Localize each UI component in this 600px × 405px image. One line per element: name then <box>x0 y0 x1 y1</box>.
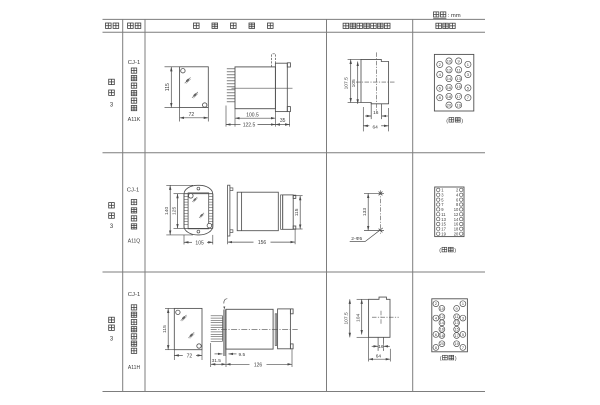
svg-text:1: 1 <box>462 302 464 306</box>
svg-text:105: 105 <box>195 240 204 246</box>
svg-text:19: 19 <box>441 231 446 236</box>
svg-text:13: 13 <box>456 76 461 81</box>
svg-text:31.5: 31.5 <box>212 358 222 364</box>
svg-text:16: 16 <box>378 344 384 350</box>
svg-text:140: 140 <box>164 207 170 215</box>
svg-text:10: 10 <box>440 307 444 311</box>
svg-text:6: 6 <box>435 333 437 337</box>
svg-text:14: 14 <box>440 321 444 325</box>
svg-text:64: 64 <box>373 125 379 131</box>
svg-text:105: 105 <box>351 79 357 87</box>
svg-text:7: 7 <box>462 346 464 350</box>
svg-text:107.5: 107.5 <box>343 312 349 325</box>
svg-text:115: 115 <box>162 325 168 333</box>
svg-text:15: 15 <box>456 84 461 89</box>
svg-text:: mm: : mm <box>448 13 461 19</box>
svg-text:19: 19 <box>456 103 461 108</box>
svg-text:18: 18 <box>440 334 444 338</box>
svg-text:14: 14 <box>447 76 452 81</box>
svg-text:2-Φ5: 2-Φ5 <box>351 236 362 242</box>
svg-text:16: 16 <box>373 110 379 116</box>
svg-text:CJ-1: CJ-1 <box>127 188 139 194</box>
svg-text:35: 35 <box>280 118 286 124</box>
svg-text:133: 133 <box>362 208 368 216</box>
svg-text:13: 13 <box>454 321 458 325</box>
svg-text:): ) <box>454 248 456 254</box>
svg-text:5: 5 <box>462 333 464 337</box>
svg-text:2: 2 <box>435 302 437 306</box>
svg-text:(: ( <box>446 118 448 124</box>
svg-text:72: 72 <box>189 112 195 118</box>
svg-text:20: 20 <box>440 342 444 346</box>
svg-text:64: 64 <box>376 354 382 360</box>
svg-text:18: 18 <box>447 94 452 99</box>
svg-text:): ) <box>461 118 463 124</box>
svg-text:15: 15 <box>454 328 458 332</box>
svg-text:10: 10 <box>447 59 452 64</box>
svg-text:A11K: A11K <box>128 117 141 123</box>
svg-text:8: 8 <box>435 346 437 350</box>
svg-text:CJ-1: CJ-1 <box>128 292 140 298</box>
svg-text:12: 12 <box>440 315 444 319</box>
svg-text:A11Q: A11Q <box>128 238 141 244</box>
svg-text:16: 16 <box>447 85 452 90</box>
svg-text:(: ( <box>440 356 442 362</box>
svg-text:16: 16 <box>440 328 444 332</box>
svg-text:115: 115 <box>165 83 171 91</box>
svg-text:(: ( <box>439 248 441 254</box>
svg-text:11: 11 <box>455 315 459 319</box>
svg-text:126: 126 <box>254 362 263 368</box>
svg-text:104: 104 <box>355 314 361 322</box>
svg-text:115: 115 <box>294 208 300 216</box>
svg-text:107.5: 107.5 <box>344 77 350 90</box>
svg-text:19: 19 <box>454 342 458 346</box>
svg-text:3: 3 <box>462 317 464 321</box>
svg-text:122.5: 122.5 <box>243 122 256 128</box>
svg-text:A11H: A11H <box>128 365 141 371</box>
svg-text:20: 20 <box>454 231 459 236</box>
svg-text:125: 125 <box>171 207 177 215</box>
svg-text:CJ-1: CJ-1 <box>128 60 140 66</box>
svg-text:9: 9 <box>456 307 458 311</box>
svg-text:156: 156 <box>258 240 267 246</box>
svg-text:100.5: 100.5 <box>246 112 259 118</box>
svg-text:17: 17 <box>456 94 461 99</box>
svg-text:72: 72 <box>187 353 193 359</box>
svg-text:12: 12 <box>447 67 452 72</box>
svg-text:17: 17 <box>454 334 458 338</box>
svg-text:4: 4 <box>435 317 437 321</box>
svg-text:9.5: 9.5 <box>239 352 246 358</box>
svg-text:): ) <box>455 356 457 362</box>
svg-text:20: 20 <box>447 103 452 108</box>
